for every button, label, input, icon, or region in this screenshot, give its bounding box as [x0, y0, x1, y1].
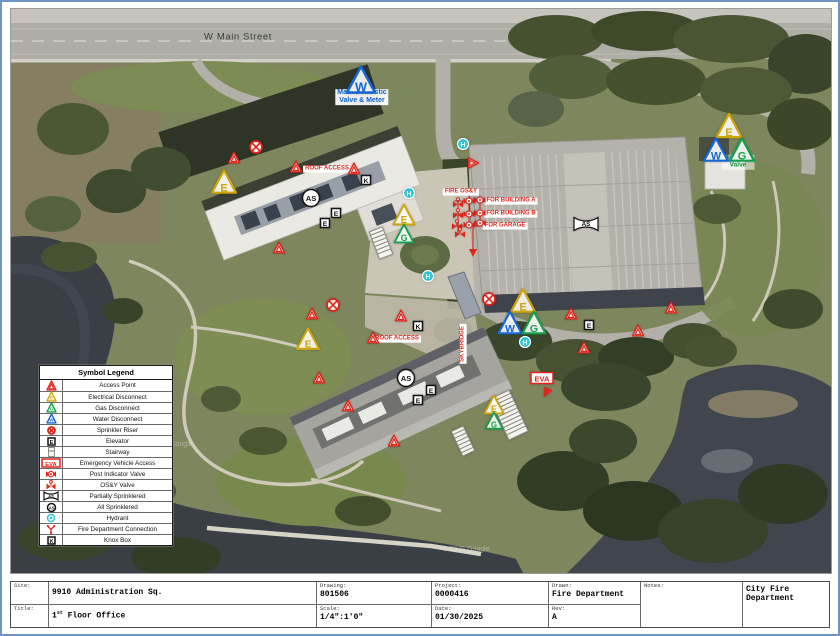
legend-item-label: Gas Disconnect — [63, 403, 172, 413]
svg-text:W: W — [355, 80, 367, 94]
legend-item-label: OS&Y Valve — [63, 480, 172, 490]
svg-text:W: W — [49, 418, 54, 423]
svg-text:G: G — [401, 233, 408, 243]
knox-box-marker: K — [413, 321, 424, 332]
gas-disconnect-marker: G — [485, 411, 504, 430]
svg-text:AS: AS — [48, 494, 54, 499]
svg-text:EVA: EVA — [45, 462, 57, 468]
svg-text:G: G — [491, 420, 497, 429]
access-point-marker — [388, 434, 401, 448]
drawn-cell: Drawn: Fire Department — [549, 582, 641, 605]
svg-text:AS: AS — [401, 374, 412, 383]
gas-disconnect-marker: G — [522, 311, 547, 336]
title-block: Site: 9910 Administration Sq. Drawing: 8… — [10, 581, 830, 628]
legend-row-knox: KKnox Box — [40, 534, 172, 545]
access-point-marker — [578, 341, 591, 355]
svg-text:H: H — [425, 273, 430, 281]
svg-text:H: H — [406, 190, 411, 198]
svg-text:G: G — [738, 150, 746, 162]
department-cell: City Fire Department — [743, 582, 829, 627]
svg-text:H: H — [522, 339, 527, 347]
legend-item-label: Elevator — [63, 436, 172, 446]
legend-row-as_circle: ASAll Sprinklered — [40, 501, 172, 512]
access-point-marker — [228, 151, 241, 165]
legend-item-label: Knox Box — [63, 535, 172, 545]
legend-item-label: Post Indicator Valve — [63, 469, 172, 479]
gas-disconnect-marker: G — [394, 224, 415, 245]
osy-valve-marker — [453, 208, 464, 220]
stairway-marker — [451, 425, 476, 456]
access-point-marker — [632, 324, 645, 338]
drawing-cell: Drawing: 801506 — [317, 582, 432, 605]
svg-text:E: E — [587, 323, 592, 330]
elevator-marker: E — [426, 385, 437, 396]
svg-text:W: W — [505, 323, 515, 335]
access-point-marker — [313, 371, 326, 385]
post-indicator-valve-marker — [464, 196, 475, 205]
osy-legend-icon — [40, 480, 63, 490]
notes-cell: Notes: — [641, 582, 743, 627]
eva-legend-icon: EVA — [40, 458, 63, 468]
legend-title: Symbol Legend — [40, 366, 172, 380]
water-disconnect-marker: W — [703, 137, 729, 162]
svg-text:H: H — [460, 141, 465, 149]
title-value-cell: 1st Floor Office — [49, 605, 317, 628]
as_bowtie-legend-icon: AS — [40, 491, 63, 501]
legend-row-water: WWater Disconnect — [40, 413, 172, 424]
svg-text:K: K — [364, 178, 369, 185]
post-indicator-valve-marker — [475, 195, 486, 204]
svg-text:E: E — [305, 340, 312, 351]
legend-item-label: Sprinkler Riser — [63, 425, 172, 435]
legend-item-label: Hydrant — [63, 513, 172, 523]
water-disconnect-marker: W — [498, 311, 523, 336]
access-point-marker — [367, 331, 380, 345]
fdc-legend-icon — [40, 524, 63, 534]
post-indicator-valve-marker — [475, 218, 486, 227]
electrical-disconnect-marker: E — [211, 169, 237, 194]
svg-text:G: G — [530, 323, 538, 335]
hydrant-marker: H — [519, 336, 532, 349]
access-point-marker — [306, 307, 319, 321]
access-point-marker — [665, 301, 678, 315]
access-point-marker — [395, 309, 408, 323]
legend-item-label: Electrical Disconnect — [63, 392, 172, 402]
project-cell: Project: 0000416 — [432, 582, 549, 605]
sprinkler-riser-marker — [325, 297, 341, 313]
osy-valve-marker — [453, 197, 464, 209]
svg-text:G: G — [49, 407, 53, 412]
partially-sprinklered-marker: AS — [573, 217, 599, 232]
legend-item-label: Emergency Vehicle Access — [63, 458, 172, 468]
svg-text:E: E — [220, 182, 227, 194]
elevator-marker: E — [320, 218, 331, 229]
stair-legend-icon — [40, 447, 63, 457]
access-point-marker — [273, 241, 286, 255]
legend-item-label: Stairway — [63, 447, 172, 457]
svg-text:W: W — [711, 150, 722, 162]
water-disconnect-marker: W — [346, 66, 376, 95]
all-sprinklered-marker: AS — [396, 368, 416, 388]
hydrant-legend-icon — [40, 513, 63, 523]
piv-legend-icon — [40, 469, 63, 479]
gas-disconnect-marker: G — [729, 137, 755, 162]
svg-text:E: E — [49, 396, 52, 401]
svg-text:AS: AS — [48, 505, 54, 510]
legend-row-elevator: EElevator — [40, 435, 172, 446]
svg-text:K: K — [49, 538, 53, 544]
access-point-marker — [342, 399, 355, 413]
rev-cell: Rev: A — [549, 605, 641, 628]
stairway-marker — [369, 226, 394, 259]
scale-cell: Scale: 1/4":1'0" — [317, 605, 432, 628]
legend-item-label: Partially Sprinklered — [63, 491, 172, 501]
legend-row-access: Access Point — [40, 380, 172, 391]
svg-text:E: E — [323, 221, 328, 228]
all-sprinklered-marker: AS — [301, 188, 321, 208]
legend-row-gas: GGas Disconnect — [40, 402, 172, 413]
symbol-legend: Symbol Legend Access PointEElectrical Di… — [39, 365, 173, 546]
legend-item-label: Water Disconnect — [63, 414, 172, 424]
legend-row-fdc: Fire Department Connection — [40, 523, 172, 534]
access-legend-icon — [40, 380, 63, 391]
elec-legend-icon: E — [40, 392, 63, 402]
post-indicator-valve-marker — [464, 209, 475, 218]
access-point-marker — [467, 157, 480, 169]
sprinkler-riser-marker — [481, 291, 497, 307]
riser-legend-icon — [40, 425, 63, 435]
elevator-marker: E — [331, 208, 342, 219]
hydrant-marker: H — [403, 187, 416, 200]
svg-text:AS: AS — [582, 221, 591, 228]
elevator-marker: E — [584, 320, 595, 331]
svg-text:E: E — [49, 439, 53, 445]
legend-row-riser: Sprinkler Riser — [40, 424, 172, 435]
legend-item-label: All Sprinklered — [63, 502, 172, 512]
svg-text:E: E — [334, 211, 339, 218]
legend-item-label: Access Point — [63, 380, 172, 391]
legend-row-piv: Post Indicator Valve — [40, 468, 172, 479]
access-point-marker — [565, 307, 578, 321]
electrical-disconnect-marker: E — [716, 113, 743, 139]
legend-item-label: Fire Department Connection — [63, 524, 172, 534]
elevator-marker: E — [413, 395, 424, 406]
svg-text:AS: AS — [306, 194, 317, 203]
post-indicator-valve-marker — [475, 208, 486, 217]
legend-row-as_bowtie: ASPartially Sprinklered — [40, 490, 172, 501]
svg-text:EVA: EVA — [535, 375, 550, 384]
site-value-cell: 9910 Administration Sq. — [49, 582, 317, 605]
site-label-cell: Site: — [11, 582, 49, 605]
eva-direction-arrow — [538, 385, 554, 401]
access-point-marker — [348, 162, 361, 176]
title-label-cell: Title: — [11, 605, 49, 628]
knox-legend-icon: K — [40, 535, 63, 545]
access-point-marker — [290, 160, 303, 174]
svg-text:E: E — [416, 398, 421, 405]
hydrant-marker: H — [457, 138, 470, 151]
svg-text:E: E — [429, 388, 434, 395]
legend-row-osy: OS&Y Valve — [40, 479, 172, 490]
site-map: W Main StreetMain DomesticValve & MeterM… — [10, 8, 832, 574]
svg-text:K: K — [416, 324, 421, 331]
legend-row-hydrant: Hydrant — [40, 512, 172, 523]
emergency-vehicle-access-marker: EVA — [530, 372, 554, 385]
elevator-legend-icon: E — [40, 436, 63, 446]
date-cell: Date: 01/30/2025 — [432, 605, 549, 628]
hydrant-marker: H — [422, 270, 435, 283]
legend-row-elec: EElectrical Disconnect — [40, 391, 172, 402]
knox-box-marker: K — [361, 175, 372, 186]
post-indicator-valve-marker — [464, 220, 475, 229]
legend-row-stair: Stairway — [40, 446, 172, 457]
water-legend-icon: W — [40, 414, 63, 424]
legend-row-eva: EVAEmergency Vehicle Access — [40, 457, 172, 468]
electrical-disconnect-marker: E — [296, 327, 320, 351]
sprinkler-riser-marker — [248, 139, 264, 155]
as_circle-legend-icon: AS — [40, 502, 63, 512]
gas-legend-icon: G — [40, 403, 63, 413]
